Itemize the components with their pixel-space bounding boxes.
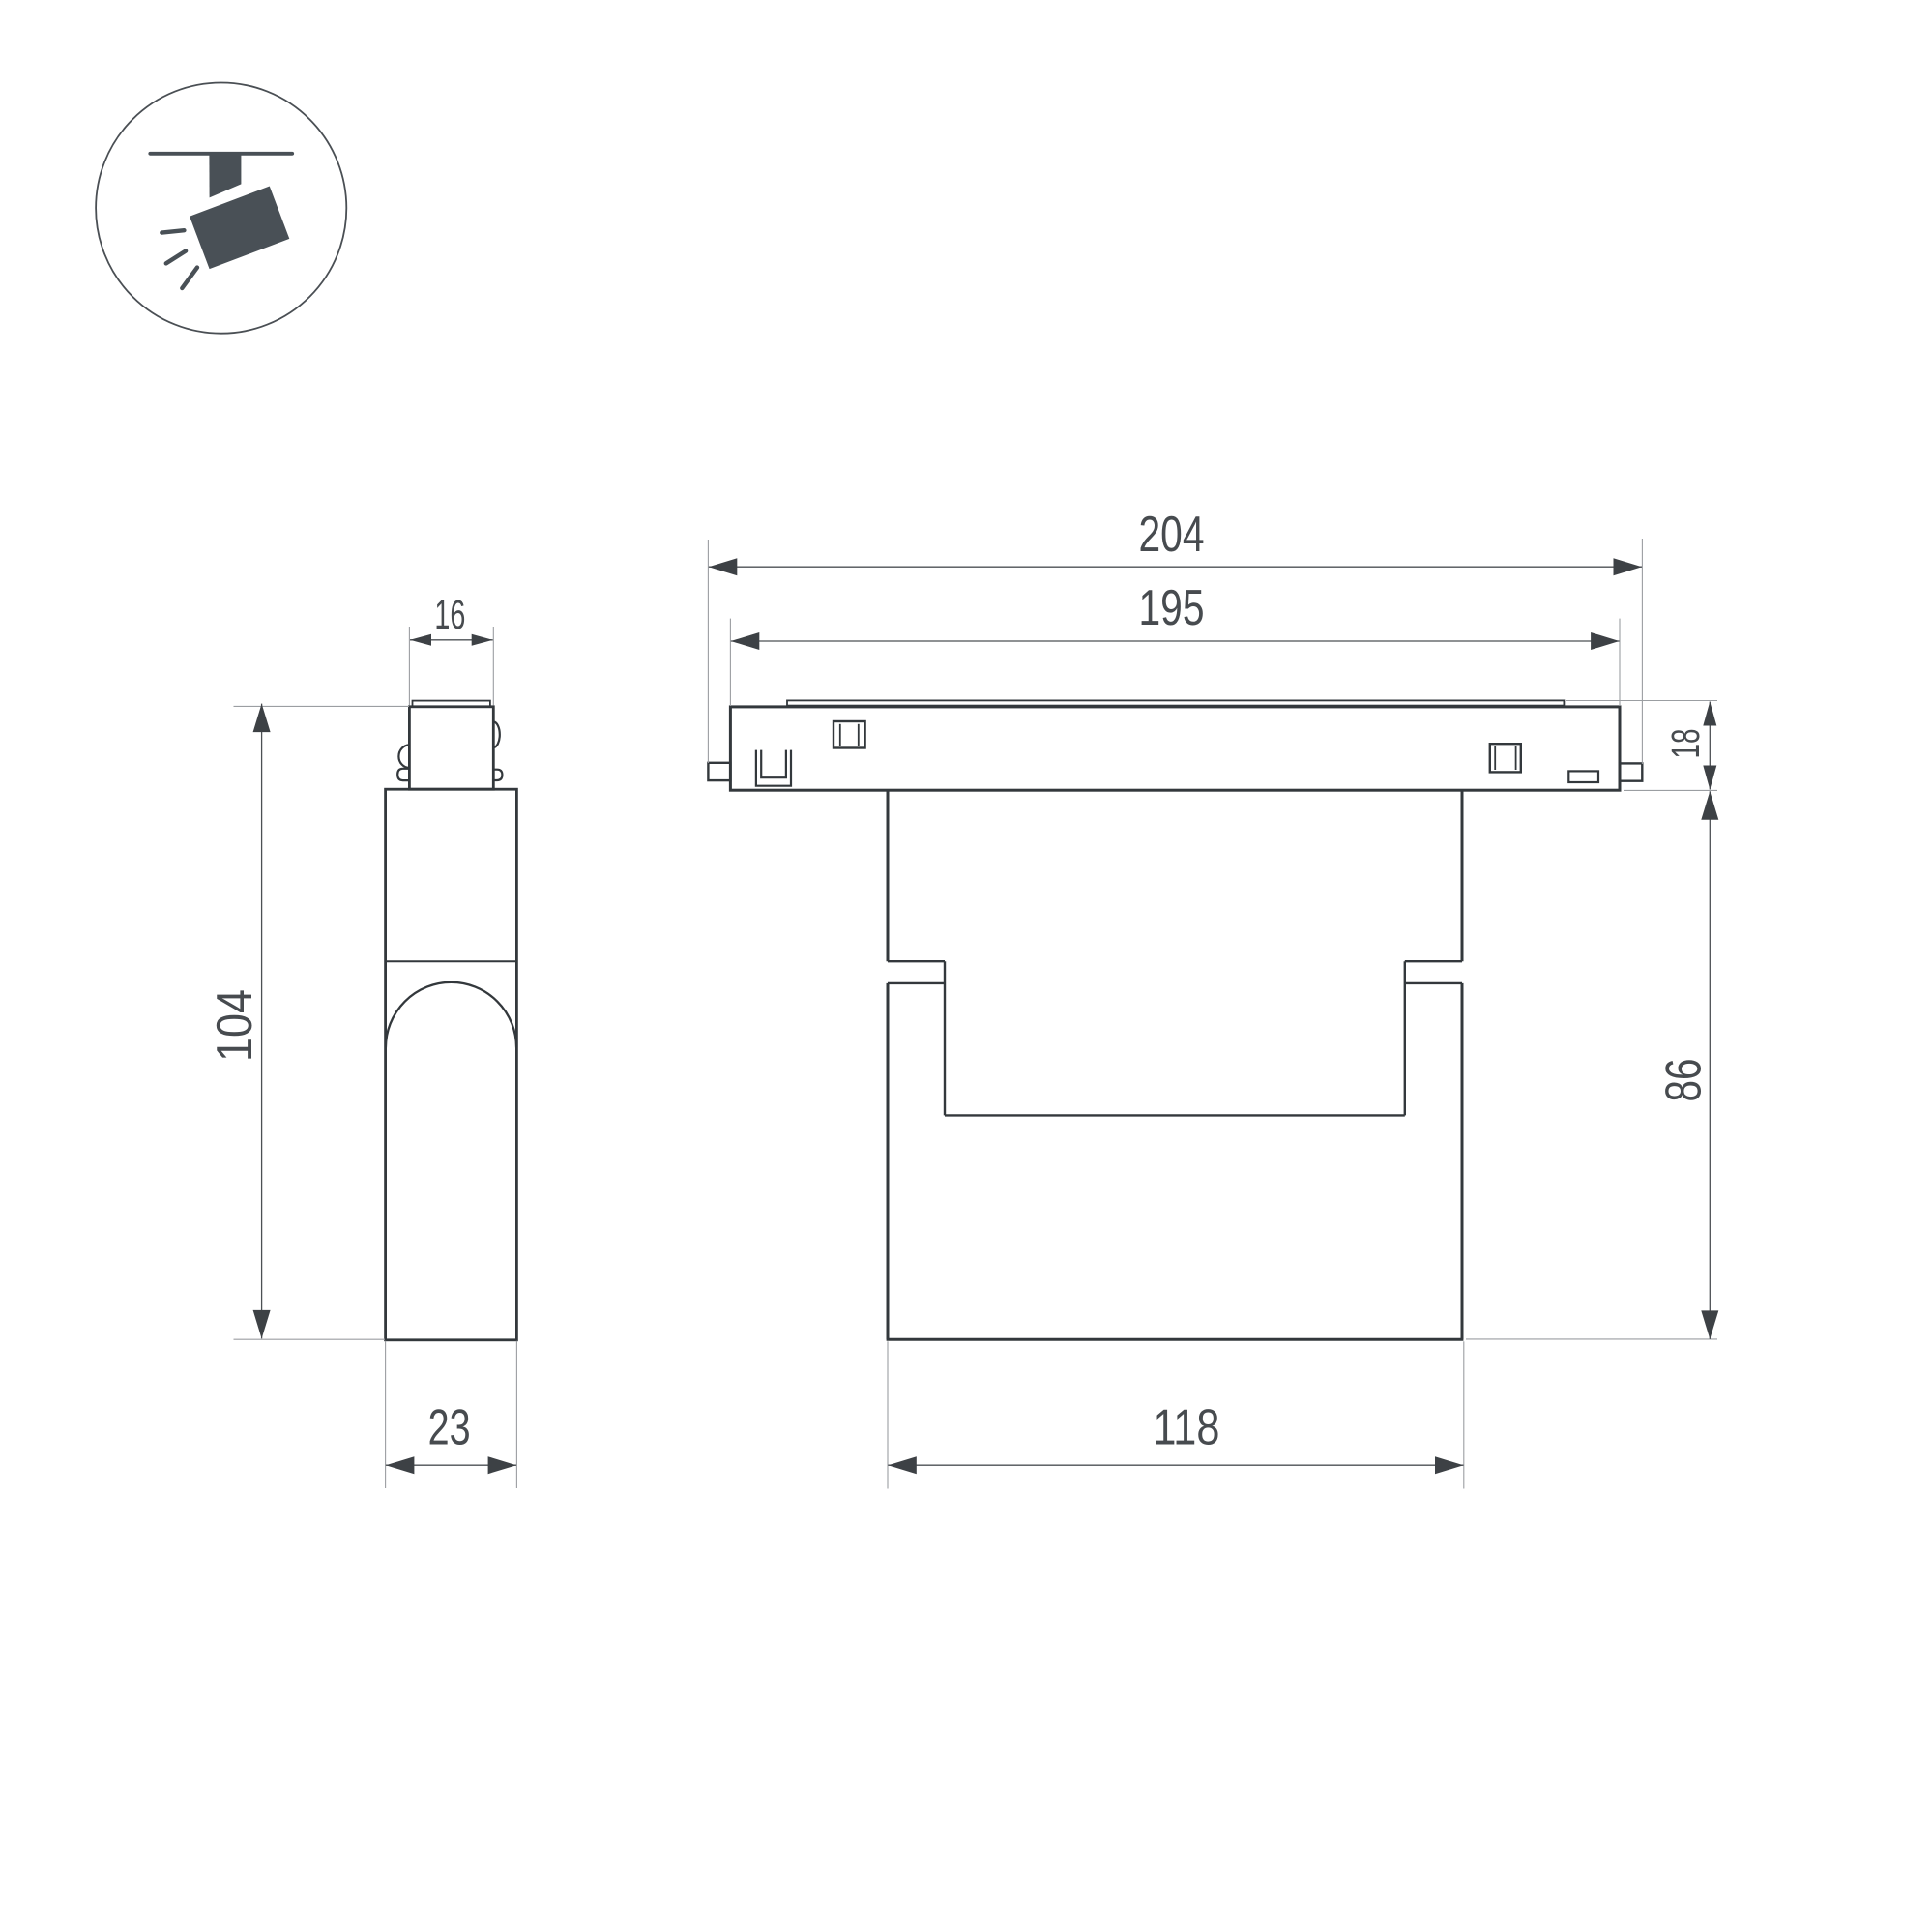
svg-text:86: 86 bbox=[1656, 1059, 1712, 1102]
svg-text:195: 195 bbox=[1139, 580, 1205, 636]
svg-text:118: 118 bbox=[1153, 1399, 1219, 1455]
svg-text:18: 18 bbox=[1663, 729, 1708, 759]
svg-text:104: 104 bbox=[207, 989, 263, 1062]
svg-text:204: 204 bbox=[1139, 507, 1205, 563]
svg-text:23: 23 bbox=[428, 1400, 471, 1456]
svg-text:16: 16 bbox=[434, 592, 465, 638]
